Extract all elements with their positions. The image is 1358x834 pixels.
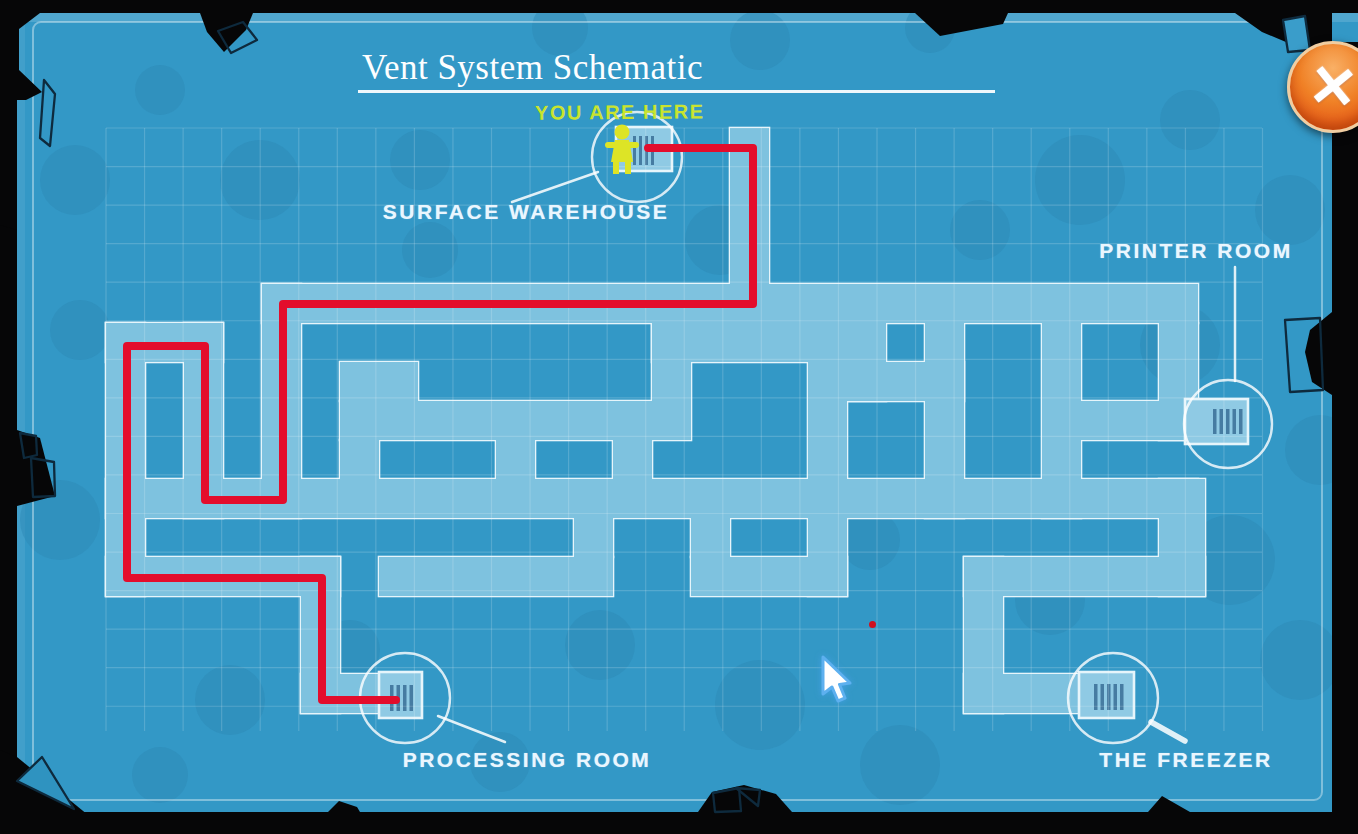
vent-processing-room[interactable] xyxy=(379,672,422,718)
vent-the-freezer[interactable] xyxy=(1079,672,1134,718)
close-icon: ✕ xyxy=(1306,56,1358,119)
label-the-freezer: THE FREEZER xyxy=(1099,748,1272,772)
mouse-cursor-icon xyxy=(816,654,856,708)
label-printer-room: PRINTER ROOM xyxy=(1099,239,1292,263)
vent-printer-room[interactable] xyxy=(1185,399,1248,444)
label-surface-warehouse: SURFACE WAREHOUSE xyxy=(383,200,669,224)
title-underline xyxy=(358,90,995,93)
vent-schematic-screen: Vent System Schematic YOU ARE HERE SURFA… xyxy=(0,0,1358,834)
you-are-here-label: YOU ARE HERE xyxy=(535,100,705,124)
red-dot-marker xyxy=(869,621,876,628)
label-processing-room: PROCESSING ROOM xyxy=(403,748,652,772)
page-title: Vent System Schematic xyxy=(362,48,703,88)
